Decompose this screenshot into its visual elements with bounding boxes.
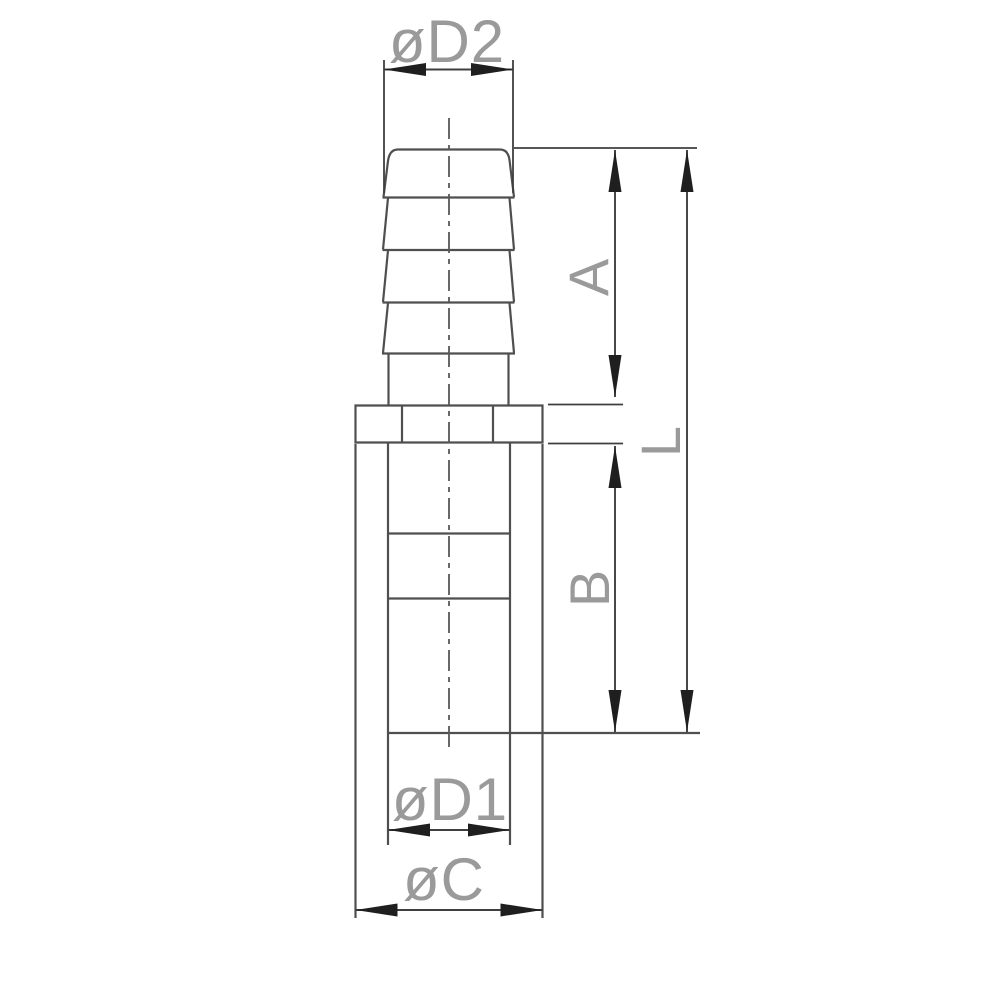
barb-side-left xyxy=(383,198,388,250)
arrowhead-up xyxy=(609,150,622,192)
dim-label-a: A xyxy=(557,258,620,296)
arrowhead-down xyxy=(609,690,622,732)
dim-label-c: øC xyxy=(403,846,485,913)
barb-side-left xyxy=(383,251,388,303)
dimension-b: B xyxy=(548,444,623,733)
arrowhead-down xyxy=(681,690,694,732)
arrowhead-left xyxy=(356,904,398,917)
dim-label-d1: øD1 xyxy=(392,766,508,833)
dimension-l: L xyxy=(629,150,694,732)
arrowhead-down xyxy=(609,355,622,397)
barb-side-right xyxy=(510,198,515,250)
drawing-canvas: øD2 A B L øD1 øC xyxy=(0,0,1000,1000)
arrowhead-right xyxy=(501,904,543,917)
arrowhead-up xyxy=(681,150,694,192)
barb-side-right xyxy=(510,251,515,303)
dim-label-l: L xyxy=(629,425,692,457)
barb-side-right xyxy=(510,303,515,353)
dim-label-b: B xyxy=(558,569,621,607)
dimension-c: øC xyxy=(356,846,543,917)
technical-drawing: øD2 A B L øD1 øC xyxy=(0,0,1000,1000)
dim-label-d2: øD2 xyxy=(389,8,505,75)
dimension-d1: øD1 xyxy=(388,766,510,837)
arrowhead-up xyxy=(609,446,622,488)
dimension-a: A xyxy=(514,148,697,405)
barb-side-left xyxy=(383,303,388,353)
